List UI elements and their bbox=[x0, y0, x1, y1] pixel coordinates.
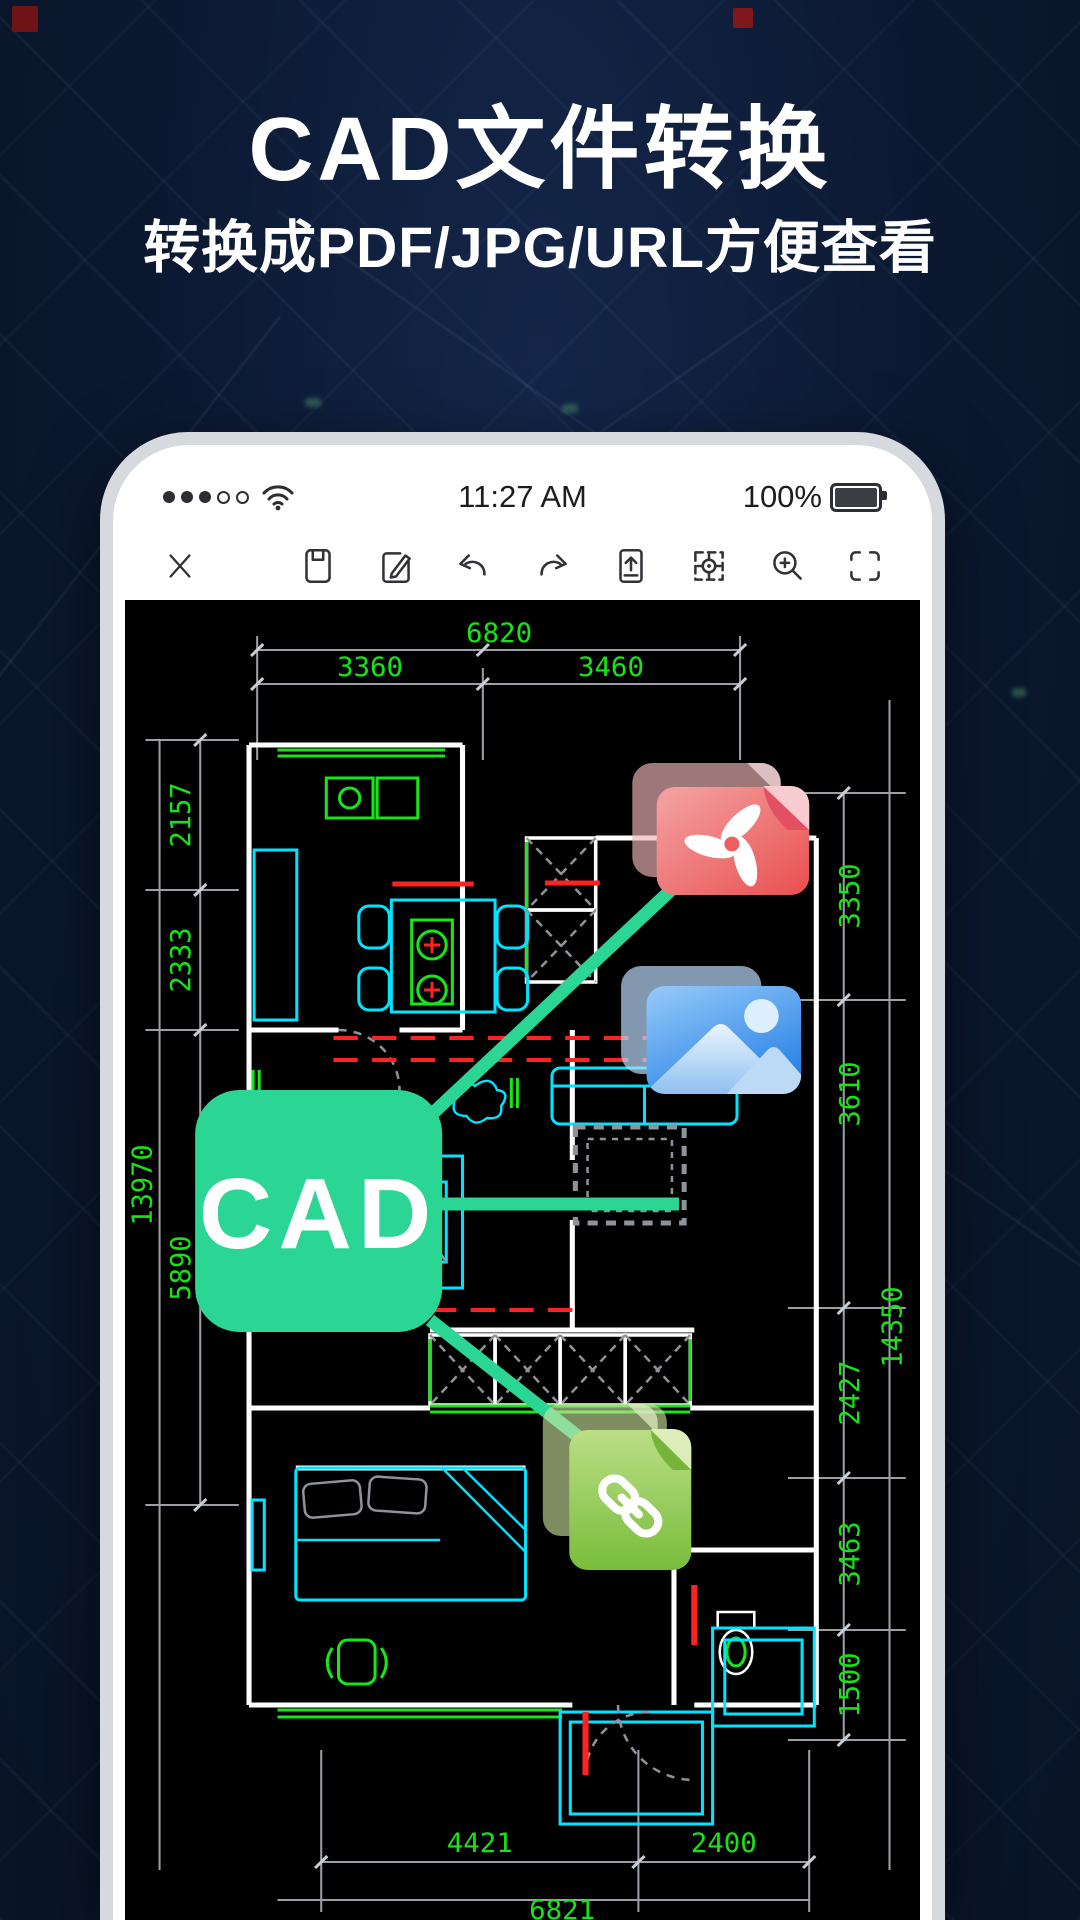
toolbar-group bbox=[295, 543, 888, 589]
close-button[interactable] bbox=[157, 543, 203, 589]
link-file-icon bbox=[543, 1404, 691, 1570]
status-bar: 11:27 AM 100% bbox=[113, 475, 932, 519]
save-button[interactable] bbox=[295, 543, 341, 589]
undo-button[interactable] bbox=[451, 543, 497, 589]
battery-icon bbox=[830, 483, 882, 512]
zoom-in-button[interactable] bbox=[764, 543, 810, 589]
cad-canvas[interactable]: 6820 3360 3460 2157 2333 5890 13970 3350… bbox=[125, 600, 920, 1920]
edit-button[interactable] bbox=[373, 543, 419, 589]
dim-label: 2333 bbox=[166, 927, 197, 992]
dim-label: 3610 bbox=[835, 1061, 866, 1126]
phone-screen: 11:27 AM 100% bbox=[113, 445, 932, 1920]
dim-label: 2400 bbox=[691, 1828, 757, 1859]
dim-label: 3460 bbox=[578, 652, 644, 683]
fullscreen-icon bbox=[843, 544, 887, 588]
background-green-mark bbox=[1012, 688, 1026, 697]
redo-icon bbox=[530, 544, 574, 588]
upload-button[interactable] bbox=[608, 543, 654, 589]
dim-label: 6821 bbox=[529, 1895, 595, 1920]
locate-button[interactable] bbox=[686, 543, 732, 589]
fullscreen-button[interactable] bbox=[842, 543, 888, 589]
image-file-icon bbox=[621, 966, 804, 1094]
dim-label: 14350 bbox=[878, 1286, 909, 1367]
page-subtitle: 转换成PDF/JPG/URL方便查看 bbox=[0, 202, 1080, 284]
pdf-file-icon bbox=[632, 763, 809, 895]
dim-label: 3350 bbox=[835, 863, 866, 928]
battery-status: 100% bbox=[743, 479, 882, 515]
dim-label: 5890 bbox=[166, 1235, 197, 1300]
save-icon bbox=[296, 544, 340, 588]
floorplan-drawing: 6820 3360 3460 2157 2333 5890 13970 3350… bbox=[125, 600, 920, 1920]
phone-mockup: 11:27 AM 100% bbox=[100, 432, 945, 1920]
background-red-block bbox=[733, 8, 753, 28]
dim-label: 2157 bbox=[166, 782, 197, 847]
redo-button[interactable] bbox=[529, 543, 575, 589]
dim-label: 1500 bbox=[835, 1652, 866, 1717]
dim-label: 13970 bbox=[127, 1144, 158, 1225]
dim-label: 4421 bbox=[447, 1828, 513, 1859]
editor-toolbar bbox=[113, 537, 932, 595]
background-green-mark bbox=[305, 398, 321, 407]
background-red-block bbox=[12, 6, 38, 32]
undo-icon bbox=[452, 544, 496, 588]
cad-badge-label: CAD bbox=[199, 1159, 438, 1270]
dim-label: 2427 bbox=[835, 1360, 866, 1425]
cad-badge: CAD bbox=[195, 1090, 442, 1332]
edit-icon bbox=[374, 544, 418, 588]
page-title: CAD文件转换 bbox=[0, 76, 1080, 206]
dim-label: 6820 bbox=[466, 618, 532, 649]
locate-icon bbox=[687, 544, 731, 588]
zoom-in-icon bbox=[765, 544, 809, 588]
promo-screen: CAD文件转换 转换成PDF/JPG/URL方便查看 bbox=[0, 0, 1080, 1920]
background-green-mark bbox=[562, 404, 578, 413]
dim-label: 3463 bbox=[835, 1521, 866, 1586]
battery-percent: 100% bbox=[743, 479, 822, 515]
sun-glyph bbox=[744, 999, 779, 1033]
dim-label: 3360 bbox=[337, 652, 403, 683]
close-icon bbox=[158, 544, 202, 588]
upload-icon bbox=[609, 544, 653, 588]
